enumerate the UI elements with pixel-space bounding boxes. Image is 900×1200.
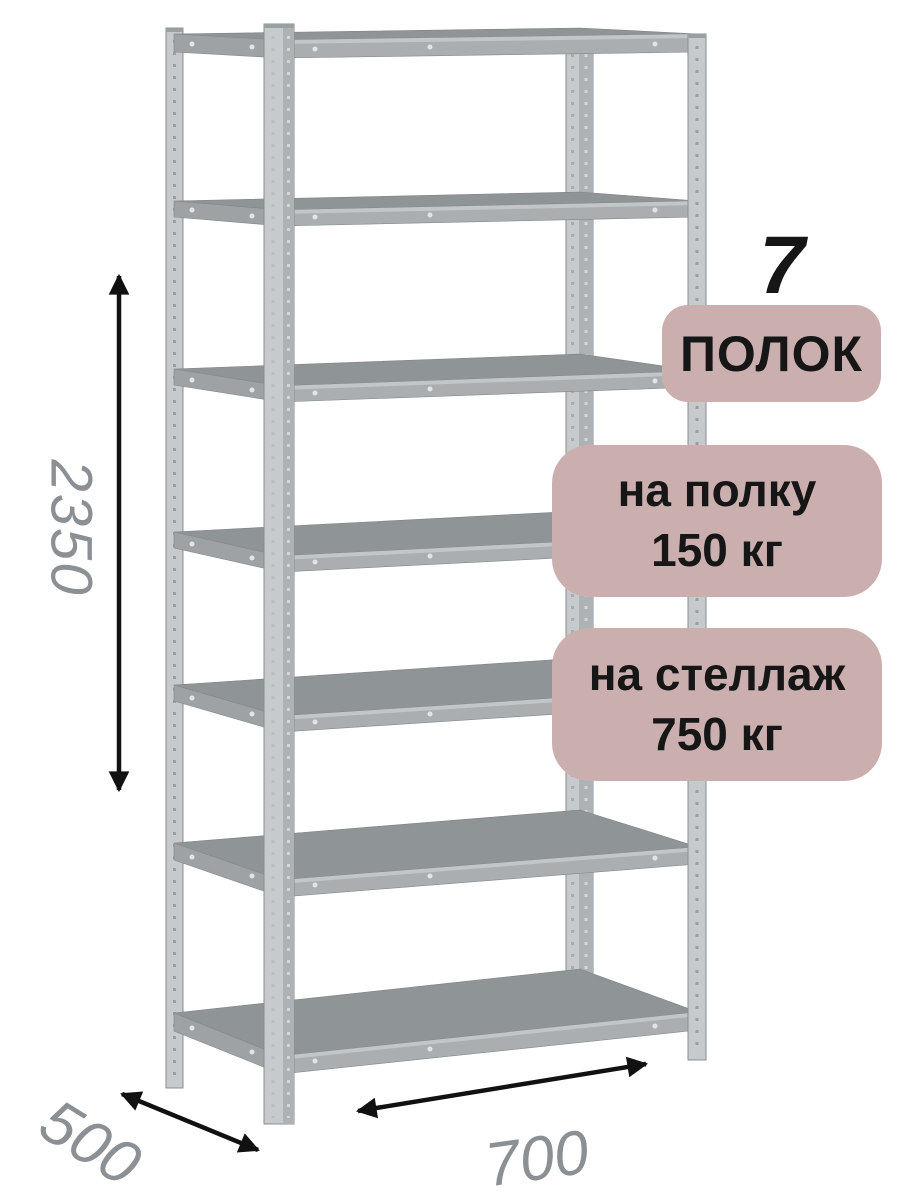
shelf-2 [174, 192, 698, 226]
rack-render [0, 0, 900, 1200]
rack-load-text: на стеллаж [589, 645, 845, 705]
width-dimension-label: 700 [481, 1117, 593, 1200]
shelf-6 [174, 810, 698, 897]
product-image: 7 ПОЛОК на полку 150 кг на стеллаж 750 к… [0, 0, 900, 1200]
shelf-1 [174, 28, 698, 58]
width-dimension-arrow [358, 1064, 646, 1111]
shelf-count-label: ПОЛОК [680, 325, 863, 383]
shelf-load-badge: на полку 150 кг [552, 445, 882, 597]
height-dimension-label: 2350 [38, 459, 105, 596]
shelf-7 [174, 969, 698, 1074]
shelf-3 [174, 354, 698, 402]
rack-load-value: 750 кг [651, 705, 783, 765]
shelf-load-text: на полку [618, 461, 817, 521]
post-front-left [264, 24, 294, 1124]
post-back-left [166, 28, 183, 1088]
shelf-count-number: 7 [759, 219, 805, 313]
shelf-load-value: 150 кг [651, 521, 783, 581]
rack-load-badge: на стеллаж 750 кг [552, 628, 882, 781]
shelf-count-badge: ПОЛОК [662, 305, 881, 402]
